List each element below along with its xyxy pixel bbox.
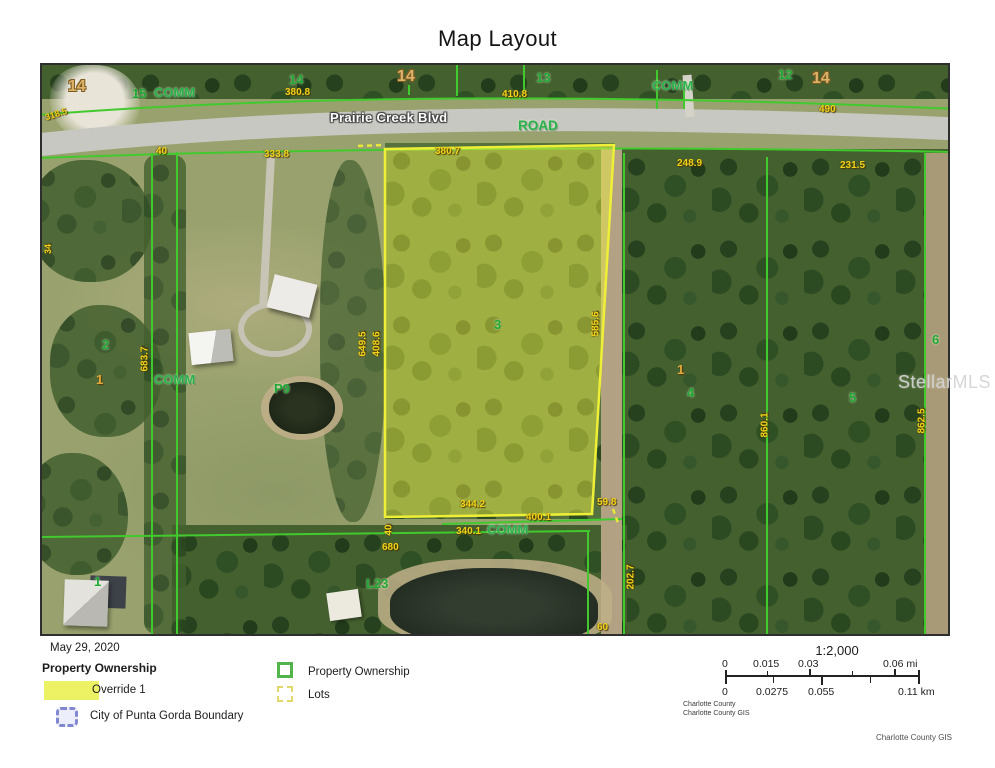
scale-km-tick-label: 0.055 xyxy=(808,686,834,698)
map-date: May 29, 2020 xyxy=(50,642,120,654)
override1-label: Override 1 xyxy=(92,684,146,696)
scale-km-tick-label: 0.11 km xyxy=(898,686,935,698)
scale-mi-tick-label: 0.015 xyxy=(753,658,779,670)
scale-km-tick-label: 0 xyxy=(722,686,728,698)
scale-km-tick-label: 0.0275 xyxy=(756,686,788,698)
legend-group-title: Property Ownership xyxy=(42,661,157,675)
city-boundary-label: City of Punta Gorda Boundary xyxy=(90,710,243,722)
scale-ratio: 1:2,000 xyxy=(712,643,962,658)
driveway-north xyxy=(687,75,690,117)
override1-swatch xyxy=(44,681,99,700)
road-pavement xyxy=(42,120,948,145)
gis-attribution: Charlotte County GIS xyxy=(876,733,952,742)
scale-tick xyxy=(894,669,896,677)
parcel-line xyxy=(442,519,622,524)
scale-mi-tick-label: 0.06 mi xyxy=(883,658,917,670)
city-boundary-icon xyxy=(56,707,78,727)
lots-dashed-line xyxy=(613,509,619,526)
map-layout-page: Map Layout xyxy=(0,0,995,768)
scale-tick xyxy=(870,677,871,683)
lots-swatch xyxy=(277,686,293,702)
credit-line: Charlotte County xyxy=(683,701,750,710)
scale-tick xyxy=(809,669,811,677)
property-ownership-label: Property Ownership xyxy=(308,666,410,678)
scale-tick xyxy=(918,670,920,684)
map-lines-layer xyxy=(42,65,948,634)
parcel-line xyxy=(42,531,590,537)
map-viewport[interactable]: 14 15 COMM 14 380.8 14 410.8 13 COMM 12 … xyxy=(40,63,950,636)
lots-label: Lots xyxy=(308,689,330,701)
scale-tick xyxy=(821,677,823,685)
scale-tick xyxy=(852,671,853,677)
scale-bar: 1:2,000 0 0.015 0.03 0.06 mi 0 0.0275 0.… xyxy=(712,643,962,701)
scale-tick xyxy=(725,670,727,684)
scale-tick xyxy=(767,671,768,677)
lots-dashed-line xyxy=(358,145,384,146)
scale-mi-tick-label: 0 xyxy=(722,658,728,670)
page-title: Map Layout xyxy=(0,26,995,52)
property-ownership-swatch xyxy=(277,662,293,678)
aerial-map: 14 15 COMM 14 380.8 14 410.8 13 COMM 12 … xyxy=(42,65,948,634)
highlight-parcel[interactable] xyxy=(385,145,614,517)
data-source-credits: Charlotte County Charlotte County GIS xyxy=(683,701,750,718)
credit-line: Charlotte County GIS xyxy=(683,710,750,719)
scale-tick xyxy=(773,677,774,683)
